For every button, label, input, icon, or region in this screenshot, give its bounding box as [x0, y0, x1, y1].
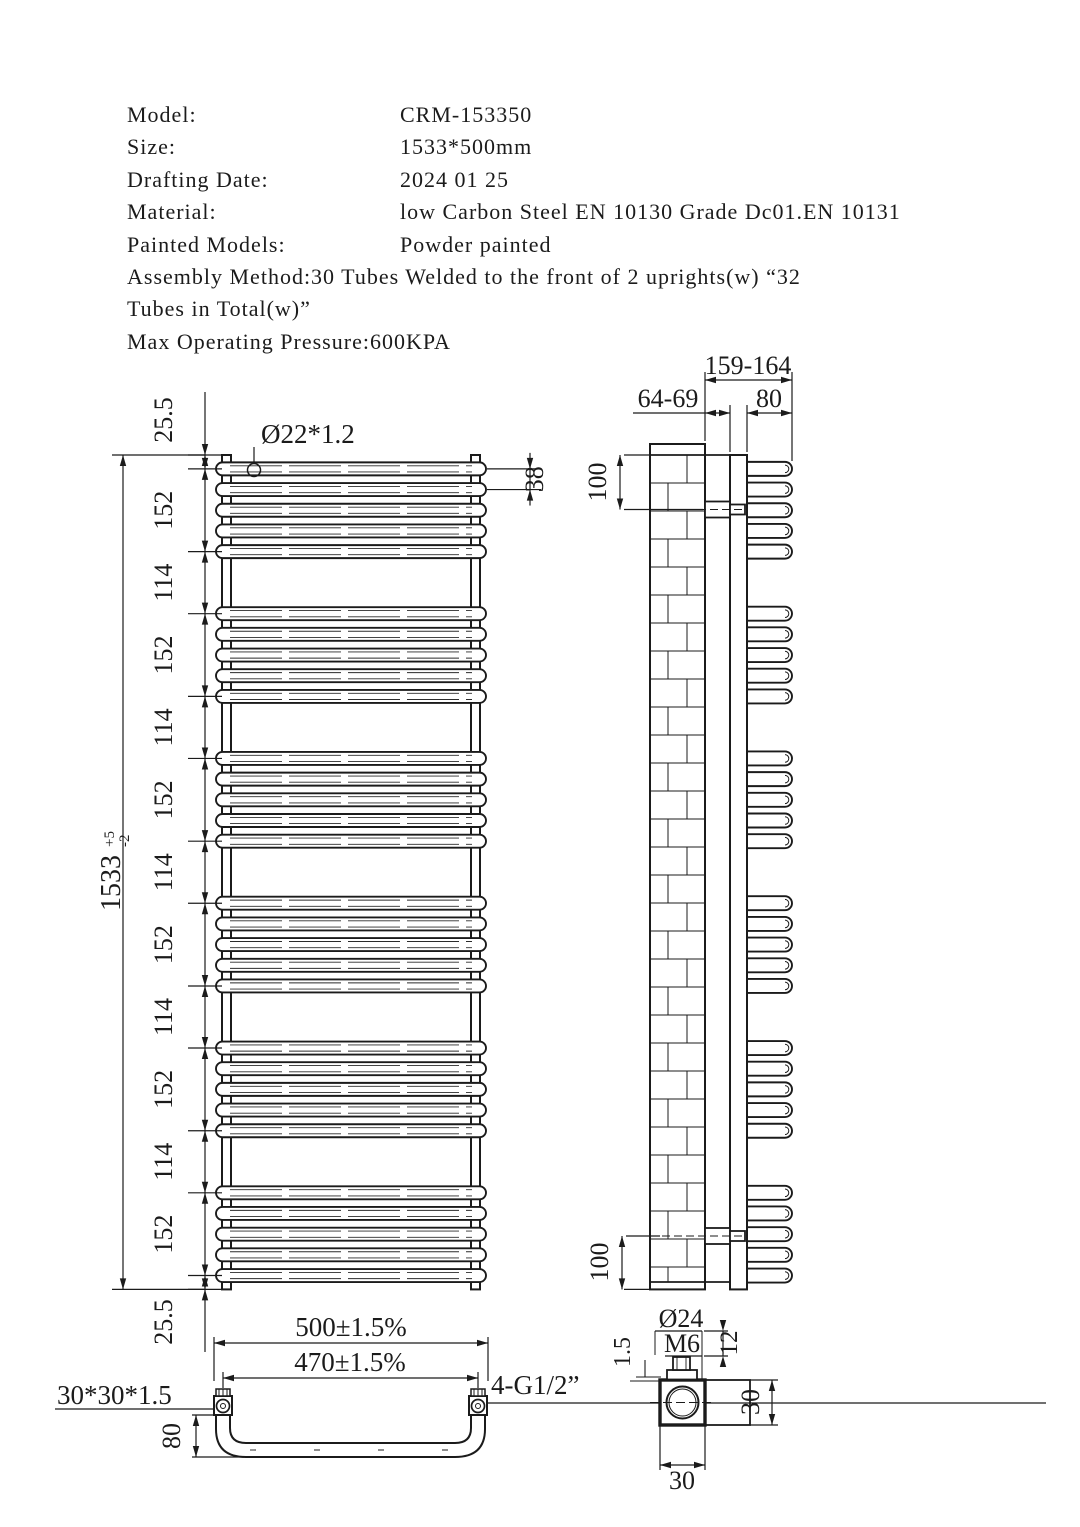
tube	[216, 649, 486, 662]
tube	[216, 1062, 486, 1075]
tube	[216, 959, 486, 972]
tube	[216, 1248, 486, 1261]
chain-dim-label: 114	[149, 998, 178, 1036]
tube	[216, 1042, 486, 1055]
tube	[216, 938, 486, 951]
fitting-detail	[650, 1357, 750, 1425]
tube	[216, 1207, 486, 1220]
chain-dim-label: 152	[149, 636, 178, 675]
bracket-offset-label: 100	[583, 463, 612, 502]
chain-dim-label: 114	[149, 1143, 178, 1181]
overall-width-label: 500±1.5%	[295, 1312, 407, 1342]
bow-depth-label: 80	[157, 1423, 186, 1449]
tube-callout-label: Ø22*1.2	[261, 419, 355, 449]
overall-height-value: 1533	[96, 855, 127, 911]
bottom-view-dimensions: 500±1.5%470±1.5%8030*30*1.54-G1/2”	[55, 1312, 1046, 1457]
overall-height-label: 1533+5-2	[96, 831, 133, 911]
wall-to-upright-label: 64-69	[638, 384, 699, 413]
wall-thickness-label: 1.5	[610, 1337, 636, 1367]
tolerance-plus: +5	[102, 831, 118, 847]
chain-dim-label: 152	[149, 1215, 178, 1254]
tube	[216, 1083, 486, 1096]
chain-dim-label: 152	[149, 925, 178, 964]
tube	[216, 814, 486, 827]
connections-label: 4-G1/2”	[491, 1370, 579, 1400]
chain-dim-label: 114	[149, 708, 178, 746]
drawing-sheet: Model: CRM-153350 Size: 1533*500mm Draft…	[0, 0, 1080, 1527]
tube	[216, 1104, 486, 1117]
chain-dim-label: 114	[149, 853, 178, 891]
tube	[216, 669, 486, 682]
technical-drawing: Ø22*1.23825.5152114152114152114152114152…	[0, 0, 1080, 1527]
chain-dim-label: 152	[149, 780, 178, 819]
upright-section-label: 30*30*1.5	[57, 1380, 172, 1410]
section-width-label: 30	[669, 1466, 695, 1495]
stud-thread-label: M6	[664, 1329, 700, 1358]
tube	[216, 773, 486, 786]
bottom-view	[214, 1389, 487, 1457]
tube	[216, 897, 486, 910]
section-height-label: 30	[736, 1389, 765, 1415]
tolerance-minus: -2	[117, 835, 133, 848]
tube	[216, 752, 486, 765]
front-view	[216, 455, 486, 1289]
side-view	[650, 444, 792, 1289]
overall-depth-label: 159-164	[705, 351, 792, 380]
tube	[216, 917, 486, 930]
tube	[216, 1228, 486, 1241]
tube-pitch-label: 38	[520, 466, 549, 492]
tube	[216, 835, 486, 848]
port-centres-label: 470±1.5%	[294, 1347, 406, 1377]
chain-dim-label: 152	[149, 491, 178, 530]
stud-length-label: 12	[716, 1331, 743, 1356]
tube	[216, 1269, 486, 1282]
tube	[216, 483, 486, 496]
tube	[216, 690, 486, 703]
chain-dim-label: 152	[149, 1070, 178, 1109]
bracket-offset-label: 100	[585, 1243, 614, 1282]
chain-dim-label: 25.5	[149, 397, 178, 443]
tube	[216, 979, 486, 992]
tube	[216, 545, 486, 558]
chain-dim-label: 114	[149, 564, 178, 602]
tube	[216, 793, 486, 806]
bow-depth-label: 80	[756, 384, 782, 413]
tube	[216, 524, 486, 537]
tube	[216, 607, 486, 620]
tube	[216, 1124, 486, 1137]
tube	[216, 1186, 486, 1199]
tube	[216, 504, 486, 517]
chain-dim-label: 25.5	[149, 1299, 178, 1345]
tube	[216, 628, 486, 641]
